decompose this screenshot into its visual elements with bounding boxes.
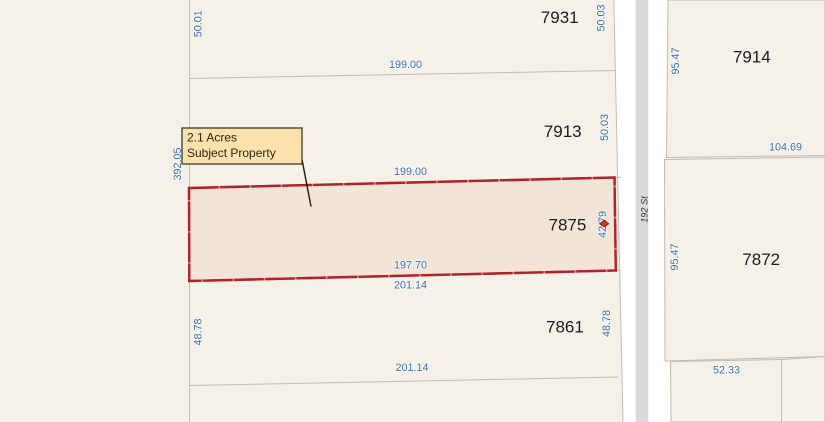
svg-text:192 St: 192 St xyxy=(640,196,650,223)
svg-text:95.47: 95.47 xyxy=(670,47,682,74)
svg-text:7875: 7875 xyxy=(549,216,587,235)
svg-text:104.69: 104.69 xyxy=(769,142,802,154)
svg-text:199.00: 199.00 xyxy=(394,166,427,178)
svg-text:201.14: 201.14 xyxy=(396,362,429,374)
svg-text:95.47: 95.47 xyxy=(669,243,681,270)
svg-text:7861: 7861 xyxy=(546,318,584,337)
svg-text:7914: 7914 xyxy=(733,48,771,67)
svg-text:7931: 7931 xyxy=(541,8,579,27)
svg-text:199.00: 199.00 xyxy=(389,59,422,71)
svg-text:7872: 7872 xyxy=(742,250,780,269)
svg-text:48.78: 48.78 xyxy=(601,310,613,337)
svg-text:Subject Property: Subject Property xyxy=(187,146,276,160)
svg-text:50.03: 50.03 xyxy=(599,114,611,141)
svg-text:50.01: 50.01 xyxy=(193,10,205,37)
svg-text:197.70: 197.70 xyxy=(394,260,427,272)
svg-text:50.03: 50.03 xyxy=(596,4,608,31)
svg-text:48.78: 48.78 xyxy=(193,318,205,345)
svg-text:7913: 7913 xyxy=(544,122,582,141)
svg-text:2.1 Acres: 2.1 Acres xyxy=(187,131,237,145)
svg-text:52.33: 52.33 xyxy=(713,365,740,377)
svg-text:201.14: 201.14 xyxy=(394,279,427,291)
